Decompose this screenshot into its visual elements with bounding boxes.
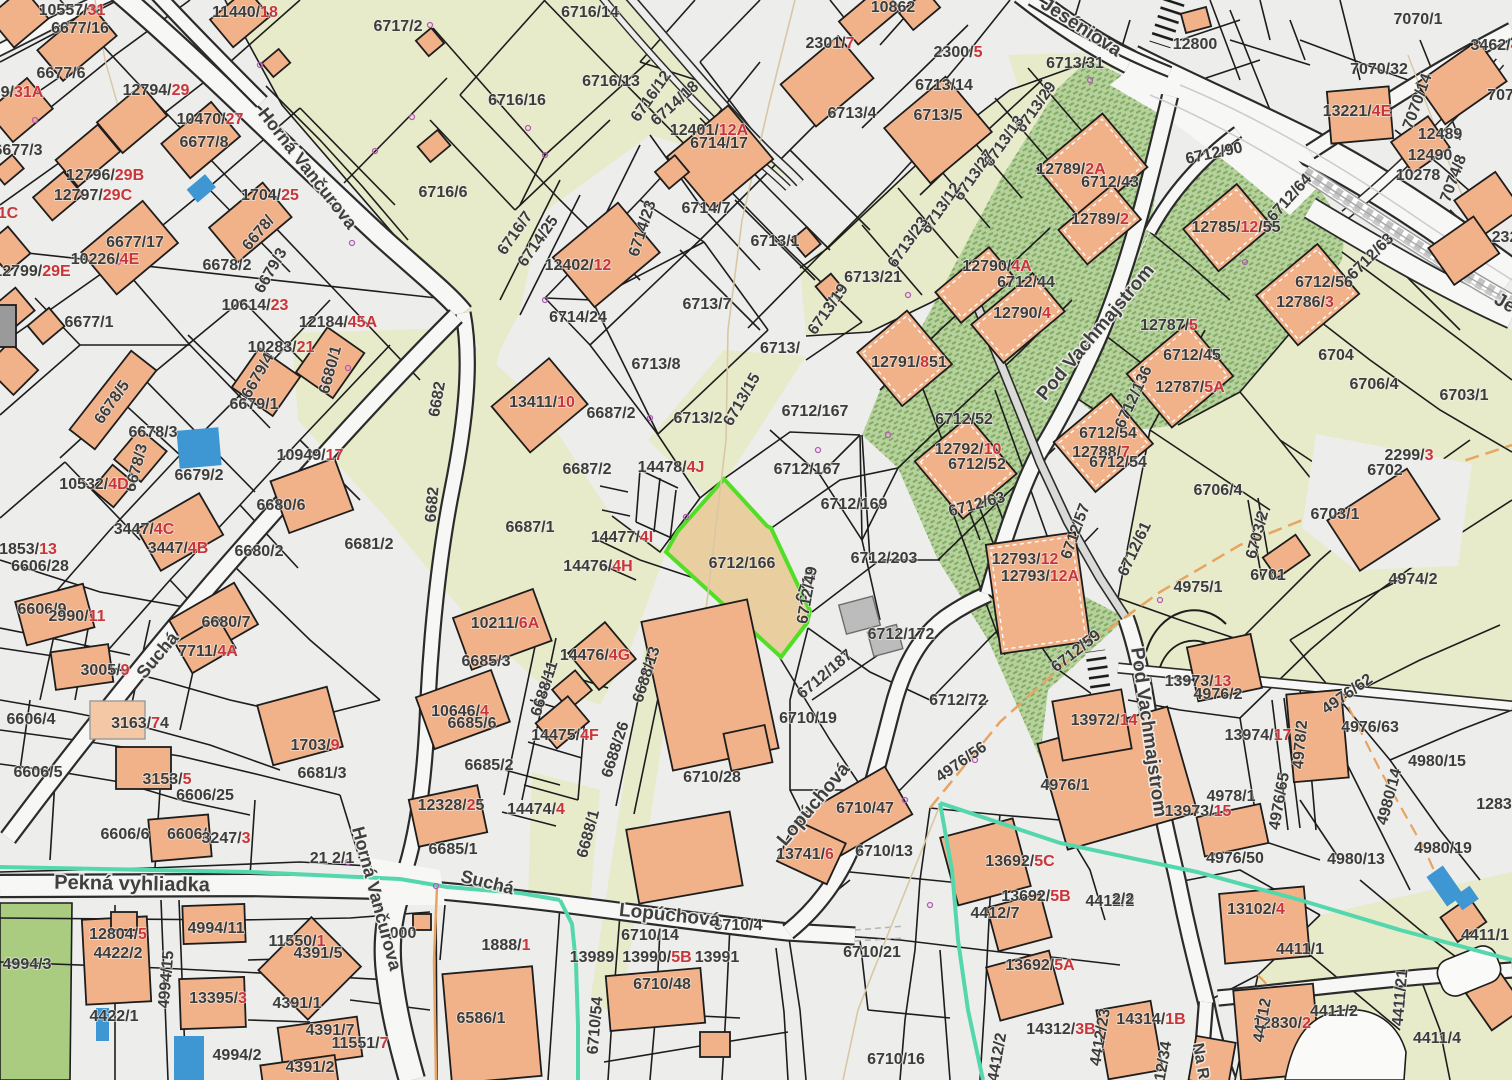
svg-text:14475/4F: 14475/4F	[531, 727, 599, 744]
svg-text:6717/2: 6717/2	[374, 18, 423, 35]
svg-text:12793/12: 12793/12	[992, 551, 1059, 568]
svg-text:6713/14: 6713/14	[915, 77, 973, 94]
svg-text:10949/17: 10949/17	[277, 447, 344, 464]
svg-text:232: 232	[1492, 229, 1512, 246]
svg-text:4411/1: 4411/1	[1276, 941, 1324, 958]
svg-text:6677/17: 6677/17	[106, 234, 164, 251]
svg-text:6710/13: 6710/13	[855, 843, 913, 860]
svg-text:10862: 10862	[871, 0, 916, 16]
svg-text:4994/11: 4994/11	[188, 920, 245, 937]
svg-text:4422/2: 4422/2	[94, 945, 143, 962]
svg-text:6712/43: 6712/43	[1081, 174, 1139, 191]
svg-text:4411/1: 4411/1	[1461, 927, 1509, 944]
svg-text:12489: 12489	[1418, 126, 1463, 143]
svg-text:3462/4: 3462/4	[1471, 37, 1512, 54]
svg-text:6706/4: 6706/4	[1194, 482, 1243, 499]
svg-text:6710/48: 6710/48	[633, 976, 691, 993]
svg-text:7070/1: 7070/1	[1394, 11, 1443, 28]
svg-text:12328/25: 12328/25	[418, 797, 485, 814]
svg-text:6710/16: 6710/16	[867, 1051, 925, 1068]
svg-text:6677/6: 6677/6	[37, 65, 86, 82]
svg-text:6712/52: 6712/52	[935, 411, 993, 428]
svg-text:4974/2: 4974/2	[1389, 571, 1438, 588]
svg-text:4391/2: 4391/2	[286, 1059, 335, 1076]
svg-text:6687/1: 6687/1	[506, 519, 555, 536]
svg-text:6678/3: 6678/3	[129, 424, 178, 441]
svg-text:12184/45A: 12184/45A	[299, 314, 378, 331]
svg-text:6685/2: 6685/2	[465, 757, 514, 774]
svg-text:12804/5: 12804/5	[89, 926, 147, 943]
svg-text:6680/2: 6680/2	[235, 543, 284, 560]
svg-text:4978/1: 4978/1	[1207, 788, 1256, 805]
svg-text:4976/50: 4976/50	[1206, 850, 1264, 867]
svg-text:6677/3: 6677/3	[0, 142, 43, 159]
svg-text:10283/21: 10283/21	[248, 339, 315, 356]
svg-text:4994/2: 4994/2	[213, 1047, 262, 1064]
svg-text:6682: 6682	[422, 486, 442, 523]
svg-text:7070: 7070	[1487, 87, 1512, 104]
svg-text:10532/4D: 10532/4D	[59, 476, 128, 493]
svg-text:6701: 6701	[1250, 567, 1286, 584]
svg-text:6606/25: 6606/25	[176, 787, 234, 804]
svg-text:1283: 1283	[1476, 796, 1512, 813]
svg-text:6712/44: 6712/44	[997, 274, 1055, 291]
svg-text:6712/52: 6712/52	[948, 456, 1006, 473]
svg-text:3153/5: 3153/5	[143, 771, 192, 788]
svg-text:13991: 13991	[695, 949, 740, 966]
svg-text:6706/4: 6706/4	[1350, 376, 1399, 393]
svg-text:4980/13: 4980/13	[1327, 851, 1385, 868]
svg-text:6712/167: 6712/167	[774, 461, 841, 478]
svg-text:13989: 13989	[570, 949, 615, 966]
svg-text:10278: 10278	[1396, 167, 1441, 184]
svg-text:12790/4: 12790/4	[993, 305, 1051, 322]
svg-text:6678/2: 6678/2	[203, 257, 252, 274]
svg-text:12794/29: 12794/29	[123, 82, 190, 99]
svg-text:12402/12: 12402/12	[545, 257, 612, 274]
svg-text:6680/7: 6680/7	[202, 614, 251, 631]
svg-text:14312/3B: 14312/3B	[1026, 1021, 1095, 1038]
svg-text:6712/166: 6712/166	[709, 555, 776, 572]
svg-text:4391/5: 4391/5	[294, 945, 343, 962]
svg-text:3447/4B: 3447/4B	[148, 540, 209, 557]
svg-text:11440/18: 11440/18	[212, 4, 278, 21]
svg-text:13411/10: 13411/10	[509, 394, 575, 411]
svg-text:4976/63: 4976/63	[1341, 719, 1399, 736]
svg-text:6677/1: 6677/1	[65, 314, 114, 331]
svg-text:6712/172: 6712/172	[868, 626, 935, 643]
svg-text:4980/19: 4980/19	[1414, 840, 1472, 857]
svg-text:6606/5: 6606/5	[14, 764, 63, 781]
svg-text:6687/2: 6687/2	[563, 461, 612, 478]
svg-text:Pekná vyhliadka: Pekná vyhliadka	[54, 872, 211, 897]
svg-text:12793/12A: 12793/12A	[1001, 568, 1080, 585]
svg-text:6713/1: 6713/1	[751, 233, 800, 250]
svg-text:6710/47: 6710/47	[836, 800, 894, 817]
svg-text:1C: 1C	[0, 205, 19, 222]
svg-text:6713/21: 6713/21	[844, 269, 902, 286]
svg-text:6714/7: 6714/7	[682, 200, 731, 217]
svg-text:3005/9: 3005/9	[81, 662, 130, 679]
svg-text:6713/31: 6713/31	[1046, 55, 1104, 72]
svg-text:6586/1: 6586/1	[457, 1010, 506, 1027]
svg-text:6712/72: 6712/72	[929, 692, 987, 709]
svg-text:1704/25: 1704/25	[241, 187, 299, 204]
svg-text:6716/16: 6716/16	[488, 92, 546, 109]
svg-text:2990/11: 2990/11	[49, 608, 106, 625]
svg-text:4994/3: 4994/3	[3, 956, 52, 973]
svg-text:12800: 12800	[1173, 36, 1218, 53]
svg-text:10226/4E: 10226/4E	[71, 251, 140, 268]
svg-text:12797/29C: 12797/29C	[54, 187, 133, 204]
svg-text:4391/1: 4391/1	[273, 995, 322, 1012]
svg-text:13692/5C: 13692/5C	[985, 853, 1055, 870]
svg-text:6712/45: 6712/45	[1163, 347, 1221, 364]
svg-text:10470/27: 10470/27	[177, 111, 244, 128]
svg-text:1888/1: 1888/1	[482, 937, 531, 954]
svg-text:6679/1: 6679/1	[230, 396, 279, 413]
svg-text:10614/23: 10614/23	[222, 297, 289, 314]
svg-text:14478/4J: 14478/4J	[638, 459, 705, 476]
svg-text:13972/14: 13972/14	[1071, 712, 1138, 729]
svg-text:13974/17: 13974/17	[1225, 727, 1292, 744]
svg-text:6712/203: 6712/203	[851, 550, 918, 567]
svg-text:6710/19: 6710/19	[779, 710, 837, 727]
svg-text:2300/5: 2300/5	[934, 44, 983, 61]
svg-text:2/2: 2/2	[1112, 891, 1134, 908]
svg-text:6713/: 6713/	[760, 340, 801, 357]
svg-text:10557/31: 10557/31	[39, 2, 106, 19]
svg-text:6716/14: 6716/14	[561, 4, 619, 21]
svg-text:6713/5: 6713/5	[914, 107, 963, 124]
svg-text:6679/2: 6679/2	[175, 467, 224, 484]
svg-text:6712/167: 6712/167	[782, 403, 849, 420]
svg-text:4976/2: 4976/2	[1194, 686, 1243, 703]
svg-text:14474/4: 14474/4	[507, 801, 565, 818]
svg-text:6677/16: 6677/16	[51, 20, 109, 37]
svg-text:7070/32: 7070/32	[1350, 61, 1408, 78]
svg-text:3247/3: 3247/3	[202, 830, 251, 847]
svg-text:6712/54: 6712/54	[1089, 454, 1147, 471]
svg-text:13990/5B: 13990/5B	[622, 949, 691, 966]
svg-text:6685/1: 6685/1	[429, 841, 478, 858]
svg-text:4422/1: 4422/1	[90, 1008, 139, 1025]
svg-text:6702: 6702	[1367, 462, 1403, 479]
svg-text:3447/4C: 3447/4C	[114, 521, 175, 538]
svg-text:6716/13: 6716/13	[582, 73, 640, 90]
svg-text:12799/29E: 12799/29E	[0, 263, 71, 280]
svg-text:14476/4H: 14476/4H	[563, 558, 632, 575]
svg-text:21 2/1: 21 2/1	[310, 850, 355, 867]
svg-text:6713/8: 6713/8	[632, 356, 681, 373]
svg-text:4411/4: 4411/4	[1413, 1030, 1461, 1047]
svg-text:6681/2: 6681/2	[345, 536, 394, 553]
svg-text:12796/29B: 12796/29B	[66, 167, 144, 184]
svg-text:14314/1B: 14314/1B	[1116, 1011, 1185, 1028]
svg-text:6714/17: 6714/17	[690, 135, 748, 152]
svg-text:6704: 6704	[1318, 347, 1354, 364]
svg-text:6606/6: 6606/6	[101, 826, 150, 843]
svg-text:6681/3: 6681/3	[298, 765, 347, 782]
svg-text:2301/7: 2301/7	[806, 35, 855, 52]
svg-text:13741/6: 13741/6	[776, 846, 834, 863]
svg-text:14476/4G: 14476/4G	[560, 647, 630, 664]
svg-text:6606/28: 6606/28	[11, 558, 69, 575]
svg-text:6685/3: 6685/3	[462, 653, 511, 670]
svg-text:12787/5A: 12787/5A	[1155, 379, 1225, 396]
svg-text:4980/15: 4980/15	[1408, 753, 1466, 770]
svg-text:6713/4: 6713/4	[828, 105, 877, 122]
svg-text:9/31A: 9/31A	[1, 84, 44, 101]
svg-text:12791/851: 12791/851	[871, 354, 947, 371]
svg-text:4412/7: 4412/7	[971, 905, 1020, 922]
svg-text:6680/6: 6680/6	[257, 497, 306, 514]
svg-text:6687/2: 6687/2	[587, 405, 636, 422]
svg-text:6714/24: 6714/24	[549, 309, 607, 326]
svg-text:3163/74: 3163/74	[111, 715, 169, 732]
svg-text:6710/21: 6710/21	[843, 944, 901, 961]
svg-text:6710/4: 6710/4	[714, 917, 763, 934]
svg-text:14477/4I: 14477/4I	[591, 529, 653, 546]
svg-text:12490: 12490	[1408, 147, 1453, 164]
svg-text:12790/4A: 12790/4A	[962, 258, 1032, 275]
svg-text:12787/5: 12787/5	[1140, 317, 1198, 334]
svg-text:6710/28: 6710/28	[683, 769, 741, 786]
svg-text:6712/56: 6712/56	[1295, 274, 1353, 291]
svg-text:12786/3: 12786/3	[1276, 294, 1334, 311]
svg-text:4976/1: 4976/1	[1041, 777, 1090, 794]
svg-text:12785/12/55: 12785/12/55	[1192, 219, 1281, 236]
svg-text:13692/5A: 13692/5A	[1005, 957, 1075, 974]
svg-text:13395/3: 13395/3	[189, 990, 247, 1007]
svg-text:1853/13: 1853/13	[0, 541, 57, 558]
svg-text:4411/2: 4411/2	[1310, 1003, 1358, 1020]
svg-text:13102/4: 13102/4	[1227, 901, 1285, 918]
svg-text:4975/1: 4975/1	[1174, 579, 1223, 596]
svg-text:6716/6: 6716/6	[419, 184, 468, 201]
svg-text:6677/8: 6677/8	[180, 134, 229, 151]
svg-text:13692/5B: 13692/5B	[1001, 888, 1070, 905]
svg-text:6713/7: 6713/7	[683, 296, 732, 313]
svg-text:6606/4: 6606/4	[7, 711, 56, 728]
svg-text:12789/2: 12789/2	[1071, 211, 1129, 228]
svg-text:6703/1: 6703/1	[1311, 506, 1360, 523]
svg-text:6710/14: 6710/14	[621, 927, 679, 944]
svg-text:6713/2: 6713/2	[674, 410, 723, 427]
svg-text:6703/1: 6703/1	[1440, 387, 1489, 404]
svg-text:13221/4E: 13221/4E	[1323, 103, 1392, 120]
svg-text:10211/6A: 10211/6A	[471, 615, 540, 632]
svg-text:11551/7: 11551/7	[332, 1035, 389, 1052]
svg-text:6685/6: 6685/6	[448, 715, 497, 732]
svg-text:6712/169: 6712/169	[821, 496, 888, 513]
svg-text:1703/9: 1703/9	[291, 737, 340, 754]
svg-text:13973/15: 13973/15	[1165, 803, 1232, 820]
svg-text:7711/4A: 7711/4A	[178, 643, 238, 660]
